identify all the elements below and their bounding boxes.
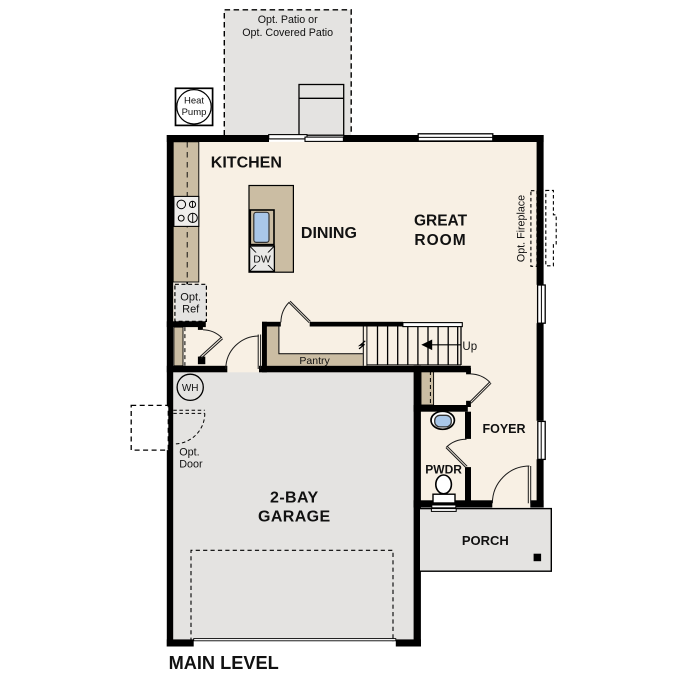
svg-text:Opt. Patio or: Opt. Patio or <box>258 14 318 26</box>
svg-text:Opt. Covered Patio: Opt. Covered Patio <box>242 27 333 39</box>
svg-text:Door: Door <box>179 458 203 470</box>
svg-text:Ref: Ref <box>182 304 200 316</box>
svg-text:Up: Up <box>462 341 477 353</box>
svg-text:Opt.: Opt. <box>180 292 201 304</box>
svg-text:KITCHEN: KITCHEN <box>211 155 282 172</box>
svg-text:GREAT: GREAT <box>414 213 468 230</box>
svg-text:GARAGE: GARAGE <box>258 509 331 526</box>
svg-text:Pump: Pump <box>182 107 207 118</box>
svg-text:FOYER: FOYER <box>482 422 525 436</box>
svg-text:Heat: Heat <box>184 96 204 107</box>
svg-text:Opt.: Opt. <box>179 446 199 458</box>
svg-text:PWDR: PWDR <box>425 462 462 476</box>
svg-text:DINING: DINING <box>301 225 357 242</box>
svg-text:DW: DW <box>253 254 271 266</box>
svg-text:MAIN LEVEL: MAIN LEVEL <box>169 653 279 673</box>
svg-text:2-BAY: 2-BAY <box>270 490 319 507</box>
svg-text:PORCH: PORCH <box>462 533 509 548</box>
svg-text:ROOM: ROOM <box>414 232 466 249</box>
svg-text:Opt. Fireplace: Opt. Fireplace <box>515 195 527 262</box>
svg-text:Pantry: Pantry <box>299 355 330 367</box>
svg-text:WH: WH <box>182 383 199 394</box>
